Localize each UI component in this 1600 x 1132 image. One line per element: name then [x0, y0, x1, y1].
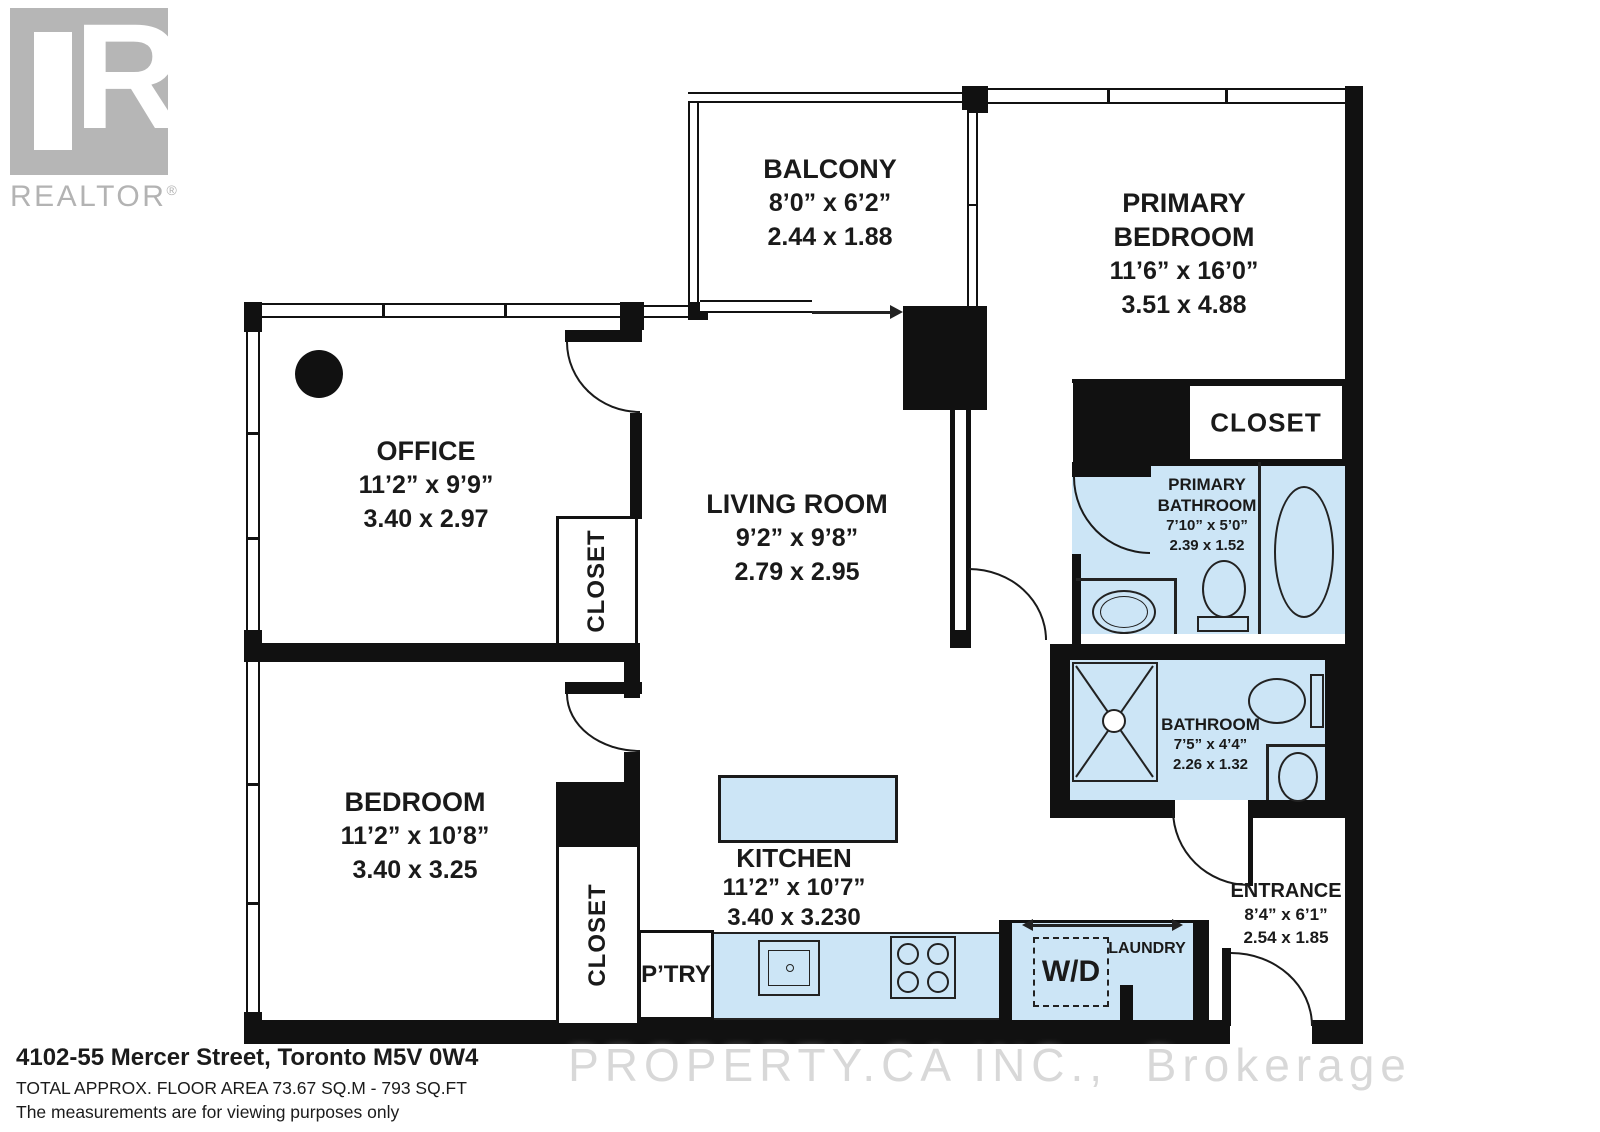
registered-symbol: ®	[166, 182, 179, 198]
door-swing-office	[566, 342, 640, 413]
living-room-label: LIVING ROOM 9’2” x 9’8” 2.79 x 2.95	[657, 487, 937, 589]
kitchen-label: KITCHEN 11’2” x 10’7” 3.40 x 3.230	[654, 843, 934, 933]
wall-corner-bl	[244, 1012, 262, 1042]
balcony-label: BALCONY 8’0” x 6’2” 2.44 x 1.88	[688, 152, 972, 254]
toilet-tank	[1310, 674, 1324, 728]
window-divider	[248, 432, 258, 435]
window-office-left	[246, 332, 260, 630]
wall-block-top-mid	[620, 302, 644, 330]
washer-dryer-box: W/D	[1033, 937, 1109, 1007]
door-leaf-entrance	[1222, 948, 1231, 1026]
toilet-tank	[1197, 616, 1249, 632]
brokerage-watermark: PROPERTY.CA INC., Brokerage	[430, 1038, 1550, 1092]
room-name: ENTRANCE	[1218, 880, 1354, 903]
room-name: BALCONY	[688, 152, 972, 186]
pantry-box: P’TRY	[638, 930, 714, 1020]
wall-pbath-left	[1072, 554, 1081, 646]
room-dim-metric: 2.54 x 1.85	[1218, 926, 1354, 949]
pantry-label: P’TRY	[641, 961, 711, 989]
closet-label: CLOSET	[583, 529, 611, 632]
sink-drain	[786, 964, 794, 972]
bathroom-label: BATHROOM 7’5” x 4’4” 2.26 x 1.32	[1128, 714, 1293, 775]
window-divider	[248, 902, 258, 905]
room-dim-imperial: 11’2” x 10’8”	[275, 819, 555, 853]
entrance-label: ENTRANCE 8’4” x 6’1” 2.54 x 1.85	[1218, 880, 1354, 949]
vanity-counter-line	[1076, 578, 1176, 581]
room-dim-metric: 2.39 x 1.52	[1118, 536, 1296, 556]
kitchen-counter	[712, 932, 1012, 1020]
wall-bedroom-mid	[624, 752, 640, 784]
wall-corner-primary-tl	[968, 86, 988, 113]
room-dim-imperial: 11’2” x 9’9”	[286, 468, 566, 502]
balcony-wall-top	[688, 92, 978, 103]
room-name: OFFICE	[286, 434, 566, 468]
room-dim-metric: 3.40 x 2.97	[286, 502, 566, 536]
burner	[927, 943, 949, 965]
arrow-head-icon	[890, 305, 903, 319]
footer-info: 4102-55 Mercer Street, Toronto M5V 0W4 T…	[16, 1044, 478, 1126]
window-primary-top	[988, 88, 1345, 104]
wall-laundry-right	[1193, 920, 1209, 1020]
wall-laundry-left	[999, 920, 1012, 1020]
room-name: BEDROOM	[1040, 220, 1328, 254]
room-dim-imperial: 9’2” x 9’8”	[657, 521, 937, 555]
realtor-logo-bar	[34, 32, 72, 150]
door-swing-bathroom	[1172, 810, 1249, 886]
room-dim-imperial: 8’4” x 6’1”	[1218, 903, 1354, 926]
laundry-label: LAUNDRY	[1102, 940, 1192, 958]
vanity-counter-line	[1174, 578, 1177, 634]
burner	[897, 943, 919, 965]
wall-laundry-stub	[1120, 985, 1133, 1020]
window-divider	[1107, 90, 1110, 102]
closet-primary: CLOSET	[1187, 383, 1345, 462]
room-dim-imperial: 11’6” x 16’0”	[1040, 254, 1328, 288]
wall-cavity	[955, 410, 966, 630]
door-swing-primary-bedroom	[969, 568, 1047, 640]
room-dim-metric: 2.26 x 1.32	[1128, 755, 1293, 775]
closet-bedroom: CLOSET	[556, 844, 640, 1026]
balcony-sill	[700, 300, 812, 313]
window-divider	[382, 305, 385, 316]
wall-block-column	[903, 306, 987, 410]
room-dim-metric: 3.40 x 3.230	[654, 903, 934, 933]
room-name: LIVING ROOM	[657, 487, 937, 521]
room-dim-imperial: 7’10” x 5’0”	[1118, 516, 1296, 536]
closet-label: CLOSET	[1190, 407, 1342, 438]
room-name: BATHROOM	[1128, 714, 1293, 735]
listing-address: 4102-55 Mercer Street, Toronto M5V 0W4	[16, 1044, 478, 1072]
wall-office-living	[630, 413, 642, 519]
realtor-logo-letter: R	[74, 8, 168, 166]
toilet-icon	[1202, 560, 1246, 618]
room-name: PRIMARY	[1118, 474, 1296, 495]
closet-office: CLOSET	[556, 516, 638, 646]
primary-bedroom-label: PRIMARY BEDROOM 11’6” x 16’0” 3.51 x 4.8…	[1040, 186, 1328, 322]
room-name: BEDROOM	[275, 785, 555, 819]
arrow-head-icon	[1022, 919, 1033, 931]
floor-plan-canvas: R REALTOR® CLO	[0, 0, 1600, 1132]
door-swing-bedroom	[566, 694, 640, 752]
realtor-wordmark: REALTOR®	[10, 180, 179, 214]
primary-bathroom-label: PRIMARY BATHROOM 7’10” x 5’0” 2.39 x 1.5…	[1118, 474, 1296, 556]
door-leaf-bedroom	[565, 682, 642, 694]
closet-label: CLOSET	[584, 883, 612, 986]
room-dim-imperial: 7’5” x 4’4”	[1128, 735, 1293, 755]
window-divider	[248, 537, 258, 540]
wall-corner-office-tl	[244, 302, 262, 332]
room-dim-metric: 2.44 x 1.88	[688, 220, 972, 254]
sliding-door-arrow	[812, 311, 892, 314]
floor-area-note: TOTAL APPROX. FLOOR AREA 73.67 SQ.M - 79…	[16, 1078, 478, 1099]
bedroom-label: BEDROOM 11’2” x 10’8” 3.40 x 3.25	[275, 785, 555, 887]
room-name: KITCHEN	[654, 843, 934, 873]
sink-inner	[1100, 596, 1148, 628]
room-name: BATHROOM	[1118, 495, 1296, 516]
door-swing-entrance	[1231, 952, 1313, 1026]
window-bedroom-left	[246, 662, 260, 1012]
door-leaf-office	[565, 330, 642, 342]
burner	[927, 971, 949, 993]
room-dim-imperial: 11’2” x 10’7”	[654, 873, 934, 903]
window-top-segment	[644, 305, 692, 318]
window-divider	[504, 305, 507, 316]
kitchen-island	[718, 775, 898, 843]
burner	[897, 971, 919, 993]
room-dim-imperial: 8’0” x 6’2”	[688, 186, 972, 220]
window-divider	[248, 783, 258, 786]
laundry-width-arrow	[1032, 924, 1174, 927]
realtor-logo-icon: R	[10, 8, 168, 175]
room-dim-metric: 2.79 x 2.95	[657, 555, 937, 589]
column-marker-icon	[295, 350, 343, 398]
washer-dryer-label: W/D	[1035, 955, 1107, 989]
closet-bedroom-header	[556, 782, 640, 844]
window-office-top	[262, 303, 624, 318]
wall-pbath-left-top	[1072, 462, 1081, 477]
room-dim-metric: 3.40 x 3.25	[275, 853, 555, 887]
arrow-head-icon	[1172, 919, 1183, 931]
room-name: PRIMARY	[1040, 186, 1328, 220]
window-divider	[1225, 90, 1228, 102]
room-dim-metric: 3.51 x 4.88	[1040, 288, 1328, 322]
stove-icon	[890, 936, 956, 999]
measurement-disclaimer: The measurements are for viewing purpose…	[16, 1102, 478, 1123]
realtor-wordmark-text: REALTOR	[10, 180, 166, 213]
closet-primary-block	[1073, 383, 1187, 462]
office-label: OFFICE 11’2” x 9’9” 3.40 x 2.97	[286, 434, 566, 536]
